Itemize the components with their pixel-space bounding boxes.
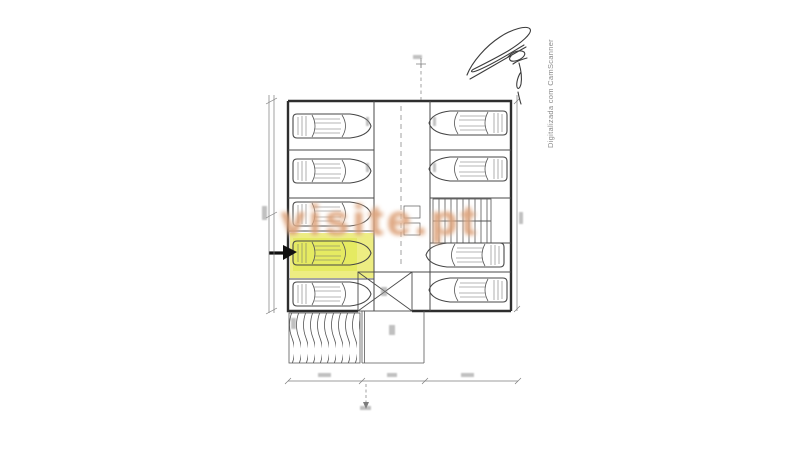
camscanner-attribution: Digitalizada com CamScanner xyxy=(546,48,555,148)
driveway xyxy=(362,311,424,363)
access-ramp xyxy=(289,313,360,363)
signature xyxy=(467,27,530,104)
scanned-page: visite.pt Digitalizada com CamScanner xyxy=(0,0,800,450)
agency-watermark: visite.pt xyxy=(281,198,531,248)
